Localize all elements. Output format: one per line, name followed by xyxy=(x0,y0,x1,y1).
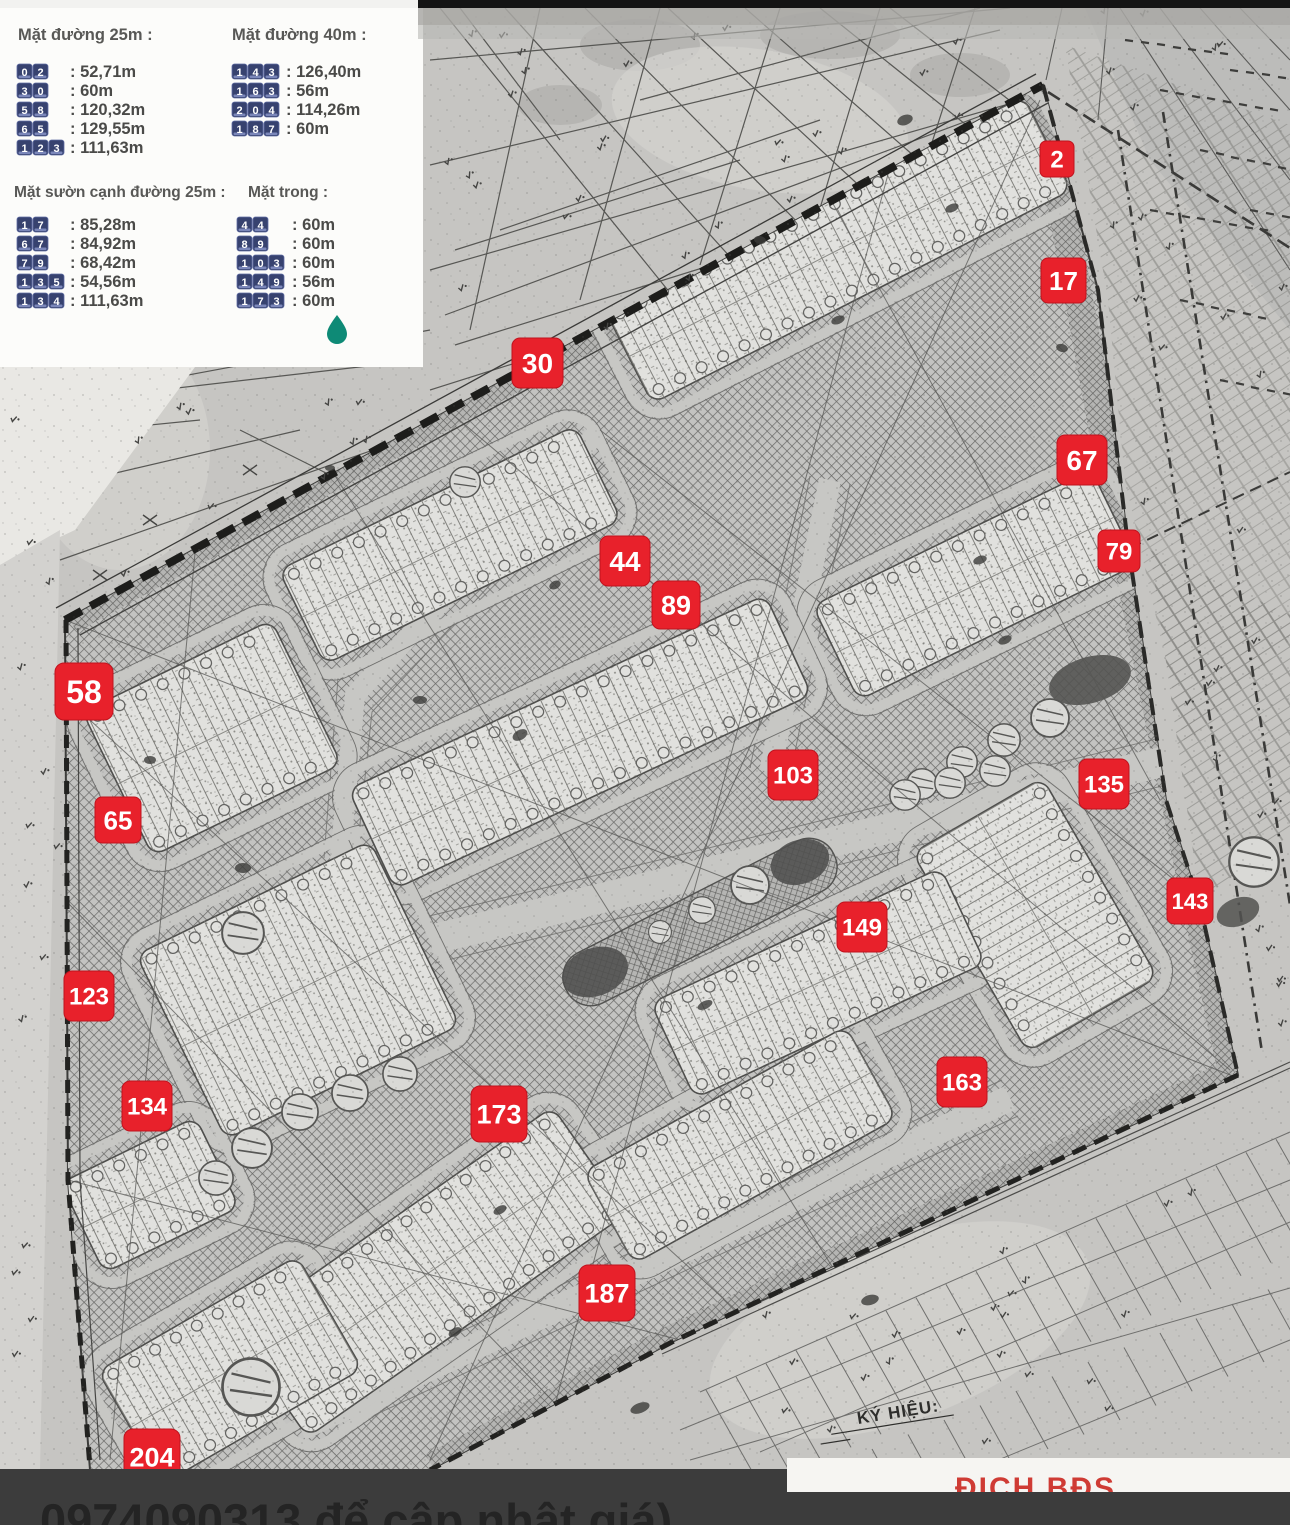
svg-text:8: 8 xyxy=(37,105,43,117)
svg-text:5: 5 xyxy=(53,277,59,289)
svg-text:: 60m: : 60m xyxy=(292,292,335,310)
svg-text:: 111,63m: : 111,63m xyxy=(70,292,143,310)
svg-text:2: 2 xyxy=(37,67,43,79)
svg-text:4: 4 xyxy=(257,220,264,232)
svg-text:1: 1 xyxy=(236,124,242,136)
svg-text:1: 1 xyxy=(241,277,247,289)
svg-text:204: 204 xyxy=(129,1443,174,1473)
svg-text:3: 3 xyxy=(268,86,274,98)
svg-text:187: 187 xyxy=(584,1279,629,1309)
svg-text:: 56m: : 56m xyxy=(286,82,329,100)
svg-text:3: 3 xyxy=(273,296,279,308)
svg-text:: 126,40m: : 126,40m xyxy=(286,63,361,81)
svg-text:7: 7 xyxy=(37,239,43,251)
svg-text:: 114,26m: : 114,26m xyxy=(286,101,360,119)
svg-text:5: 5 xyxy=(21,105,27,117)
svg-text:3: 3 xyxy=(53,143,59,155)
svg-text:: 84,92m: : 84,92m xyxy=(70,235,136,253)
svg-text:3: 3 xyxy=(268,67,274,79)
svg-text:: 129,55m: : 129,55m xyxy=(70,120,145,138)
svg-text:2: 2 xyxy=(236,105,242,117)
svg-text:: 54,56m: : 54,56m xyxy=(70,273,136,291)
svg-text:9: 9 xyxy=(37,258,43,270)
svg-text:8: 8 xyxy=(252,124,258,136)
svg-text:103: 103 xyxy=(773,763,813,790)
svg-text:5: 5 xyxy=(37,124,43,136)
svg-text:: 60m: : 60m xyxy=(70,82,113,100)
svg-text:3: 3 xyxy=(21,86,27,98)
svg-text:67: 67 xyxy=(1066,445,1097,476)
svg-text:: 60m: : 60m xyxy=(292,216,335,234)
svg-text:: 60m: : 60m xyxy=(286,120,329,138)
svg-text:9: 9 xyxy=(257,239,263,251)
svg-text:Mặt đường 25m :: Mặt đường 25m : xyxy=(18,26,153,44)
svg-text:143: 143 xyxy=(1172,889,1209,914)
svg-text:1: 1 xyxy=(236,67,242,79)
svg-text:4: 4 xyxy=(53,296,60,308)
svg-text:0: 0 xyxy=(252,105,258,117)
svg-text:0: 0 xyxy=(21,67,27,79)
svg-text:2: 2 xyxy=(37,143,43,155)
svg-text:58: 58 xyxy=(66,674,102,710)
svg-text:: 85,28m: : 85,28m xyxy=(70,216,136,234)
svg-text:: 60m: : 60m xyxy=(292,254,335,272)
svg-text:4: 4 xyxy=(252,67,259,79)
svg-text:8: 8 xyxy=(241,239,247,251)
svg-text:4: 4 xyxy=(241,220,248,232)
svg-text:44: 44 xyxy=(609,546,641,577)
svg-text:123: 123 xyxy=(69,984,109,1011)
svg-text:17: 17 xyxy=(1049,266,1078,296)
svg-text:149: 149 xyxy=(842,915,882,942)
svg-text:89: 89 xyxy=(661,591,691,621)
svg-text:Mặt sườn cạnh đường 25m :: Mặt sườn cạnh đường 25m : xyxy=(14,184,226,201)
svg-text:135: 135 xyxy=(1084,772,1124,799)
svg-text:: 120,32m: : 120,32m xyxy=(70,101,145,119)
svg-text:3: 3 xyxy=(273,258,279,270)
svg-text:3: 3 xyxy=(37,277,43,289)
svg-text:1: 1 xyxy=(241,296,247,308)
svg-text:134: 134 xyxy=(127,1094,168,1121)
svg-text:1: 1 xyxy=(21,277,27,289)
svg-text:4: 4 xyxy=(268,105,275,117)
svg-text:1: 1 xyxy=(21,143,27,155)
svg-text:173: 173 xyxy=(476,1100,521,1130)
svg-text:1: 1 xyxy=(236,86,242,98)
svg-text:: 56m: : 56m xyxy=(292,273,335,291)
svg-text:1: 1 xyxy=(21,296,27,308)
svg-text:4: 4 xyxy=(257,277,264,289)
svg-text:: 52,71m: : 52,71m xyxy=(70,63,136,81)
svg-text:1: 1 xyxy=(241,258,247,270)
svg-text:: 68,42m: : 68,42m xyxy=(70,254,136,272)
svg-text:Mặt đường 40m :: Mặt đường 40m : xyxy=(232,26,367,44)
svg-text:2: 2 xyxy=(1050,147,1063,174)
svg-text:0974090313 để cập nhật giá): 0974090313 để cập nhật giá) xyxy=(40,1494,672,1525)
svg-text:0: 0 xyxy=(37,86,43,98)
svg-text:: 111,63m: : 111,63m xyxy=(70,139,143,157)
svg-text:6: 6 xyxy=(252,86,258,98)
svg-text:79: 79 xyxy=(1106,539,1133,566)
svg-text:1: 1 xyxy=(21,220,27,232)
svg-text:7: 7 xyxy=(257,296,263,308)
svg-text:: 60m: : 60m xyxy=(292,235,335,253)
svg-text:6: 6 xyxy=(21,124,27,136)
svg-text:0: 0 xyxy=(257,258,263,270)
svg-text:7: 7 xyxy=(21,258,27,270)
svg-text:6: 6 xyxy=(21,239,27,251)
svg-text:7: 7 xyxy=(268,124,274,136)
svg-text:65: 65 xyxy=(104,805,133,835)
svg-text:9: 9 xyxy=(273,277,279,289)
svg-text:163: 163 xyxy=(942,1070,982,1097)
svg-text:3: 3 xyxy=(37,296,43,308)
svg-text:Mặt trong :: Mặt trong : xyxy=(248,184,328,201)
svg-text:7: 7 xyxy=(37,220,43,232)
svg-text:30: 30 xyxy=(522,348,553,379)
